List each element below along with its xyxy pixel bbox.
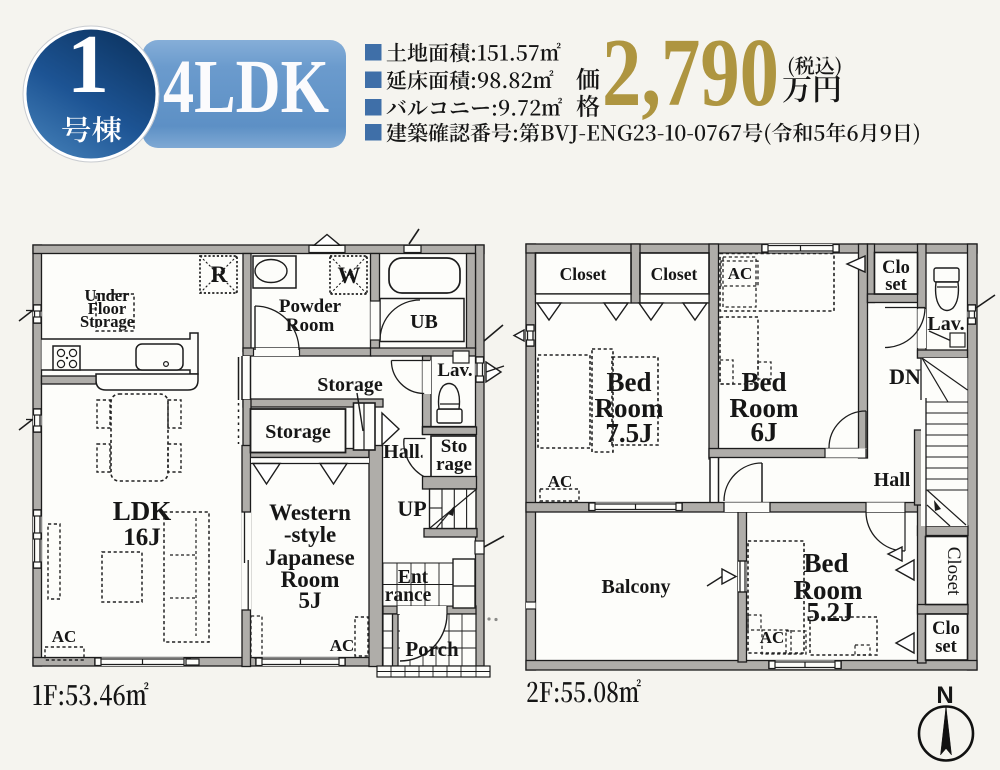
- svg-text:AC: AC: [52, 627, 77, 646]
- svg-text:Storage: Storage: [265, 421, 331, 443]
- svg-text:R: R: [211, 262, 228, 287]
- svg-text:Lav.: Lav.: [437, 360, 472, 381]
- svg-text:Bed: Bed: [803, 548, 848, 578]
- svg-text:AC: AC: [548, 472, 573, 491]
- svg-text:Porch: Porch: [405, 637, 459, 661]
- svg-text:Balcony: Balcony: [602, 576, 671, 598]
- svg-text:Lav.: Lav.: [927, 313, 964, 335]
- svg-text:LDK: LDK: [113, 496, 172, 526]
- svg-text:AC: AC: [728, 264, 753, 283]
- svg-text:6J: 6J: [751, 417, 778, 447]
- svg-text:Room: Room: [286, 315, 335, 336]
- svg-text:Closet: Closet: [651, 264, 698, 284]
- svg-text:Storage: Storage: [80, 312, 134, 331]
- svg-text:1: 1: [67, 18, 109, 111]
- svg-text:UP: UP: [397, 496, 426, 521]
- svg-text:2,790: 2,790: [602, 19, 779, 126]
- svg-text:rance: rance: [385, 585, 432, 606]
- svg-text:N: N: [936, 682, 953, 709]
- svg-text:Powder: Powder: [279, 296, 342, 317]
- svg-text:4LDK: 4LDK: [163, 45, 329, 129]
- svg-text:AC: AC: [760, 628, 785, 647]
- svg-text:Storage: Storage: [317, 374, 383, 396]
- svg-text:Closet: Closet: [560, 264, 607, 284]
- svg-text:Hall: Hall: [874, 469, 911, 491]
- svg-text:UB: UB: [410, 311, 438, 333]
- svg-text:rage: rage: [436, 454, 472, 475]
- svg-text:16J: 16J: [123, 524, 161, 551]
- svg-text:5J: 5J: [299, 588, 322, 613]
- svg-text:5.2J: 5.2J: [806, 597, 853, 627]
- svg-text:-style: -style: [284, 522, 336, 547]
- svg-text:set: set: [935, 637, 957, 657]
- svg-text:Closet: Closet: [943, 547, 964, 596]
- svg-text:set: set: [885, 275, 907, 295]
- svg-text:AC: AC: [330, 636, 355, 655]
- svg-text:W: W: [338, 263, 361, 288]
- svg-text:DN: DN: [889, 364, 921, 389]
- svg-text:Clo: Clo: [932, 619, 960, 639]
